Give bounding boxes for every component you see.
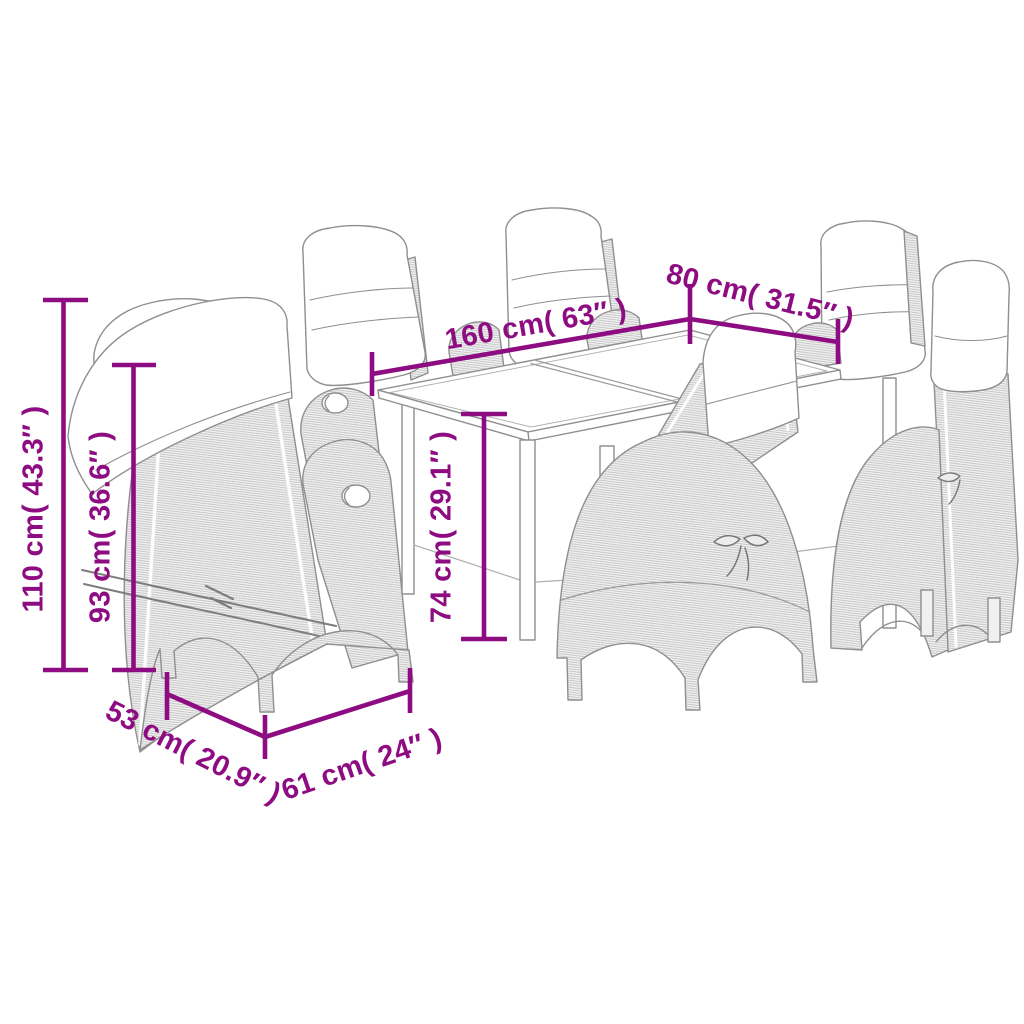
- chair-leg: [988, 598, 1000, 642]
- dimension-label-110cm: 110 cm( 43.3″ ): [18, 405, 51, 612]
- furniture-line-art: [0, 0, 1024, 1024]
- seat-shell: [557, 432, 817, 710]
- recline-lever: [322, 393, 348, 413]
- table-leg: [402, 396, 414, 594]
- dimension-line-74cm: [461, 414, 507, 639]
- product-dimension-diagram: 110 cm( 43.3″ ) 93 cm( 36.6″ ) 160 cm( 6…: [0, 0, 1024, 1024]
- dimension-label-93cm: 93 cm( 36.6″ ): [85, 431, 118, 623]
- dimension-label-74cm: 74 cm( 29.1″ ): [426, 431, 459, 623]
- table-leg: [520, 440, 535, 640]
- chair-leg: [921, 590, 933, 636]
- dimension-line-61cm: [265, 668, 410, 737]
- recline-lever: [342, 485, 370, 507]
- back-cushion: [931, 260, 1010, 391]
